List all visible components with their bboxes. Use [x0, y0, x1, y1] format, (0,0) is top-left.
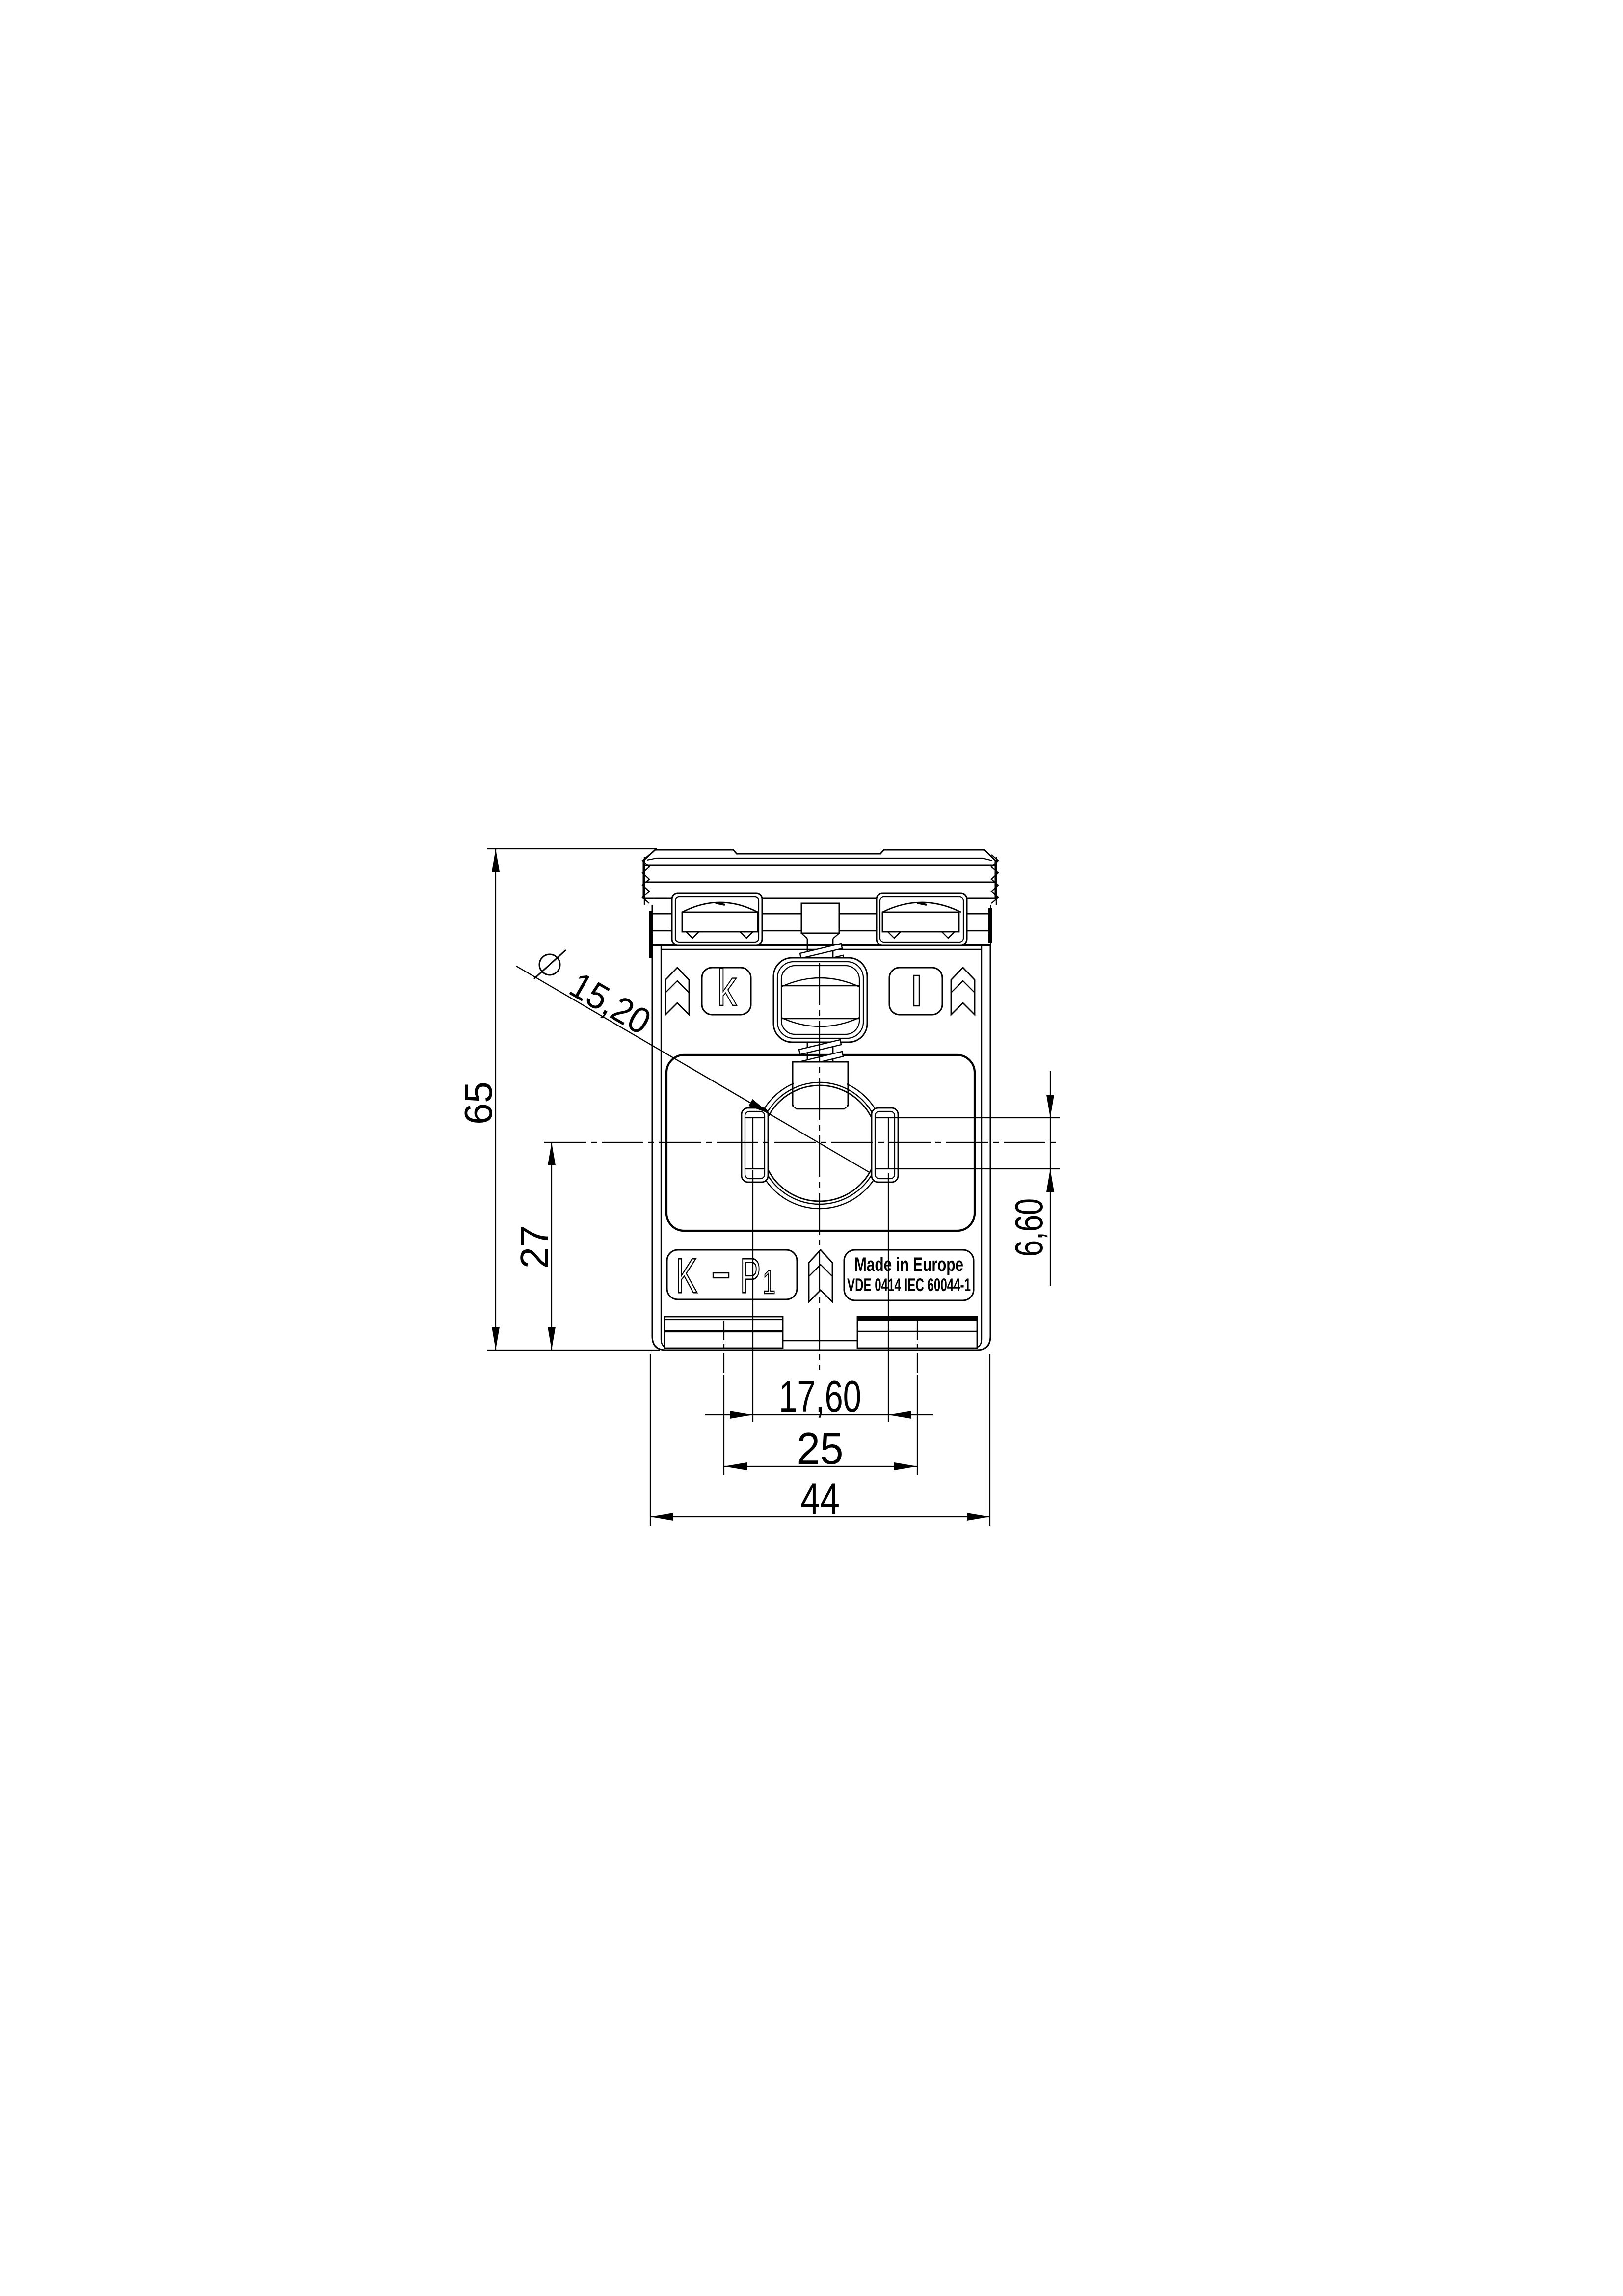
- svg-text:17,60: 17,60: [779, 1372, 861, 1422]
- svg-text:6,60: 6,60: [1007, 1198, 1051, 1257]
- svg-text:K: K: [676, 1248, 697, 1303]
- svg-text:25: 25: [797, 1424, 844, 1474]
- svg-text:k: k: [717, 959, 737, 1017]
- svg-text:P: P: [740, 1248, 761, 1303]
- svg-text:VDE 0414 IEC 60044-1: VDE 0414 IEC 60044-1: [847, 1275, 971, 1295]
- svg-text:27: 27: [512, 1225, 556, 1269]
- svg-text:Made in Europe: Made in Europe: [854, 1254, 963, 1275]
- svg-text:65: 65: [456, 1081, 500, 1125]
- svg-text:44: 44: [800, 1474, 840, 1524]
- svg-text:1: 1: [763, 1264, 775, 1301]
